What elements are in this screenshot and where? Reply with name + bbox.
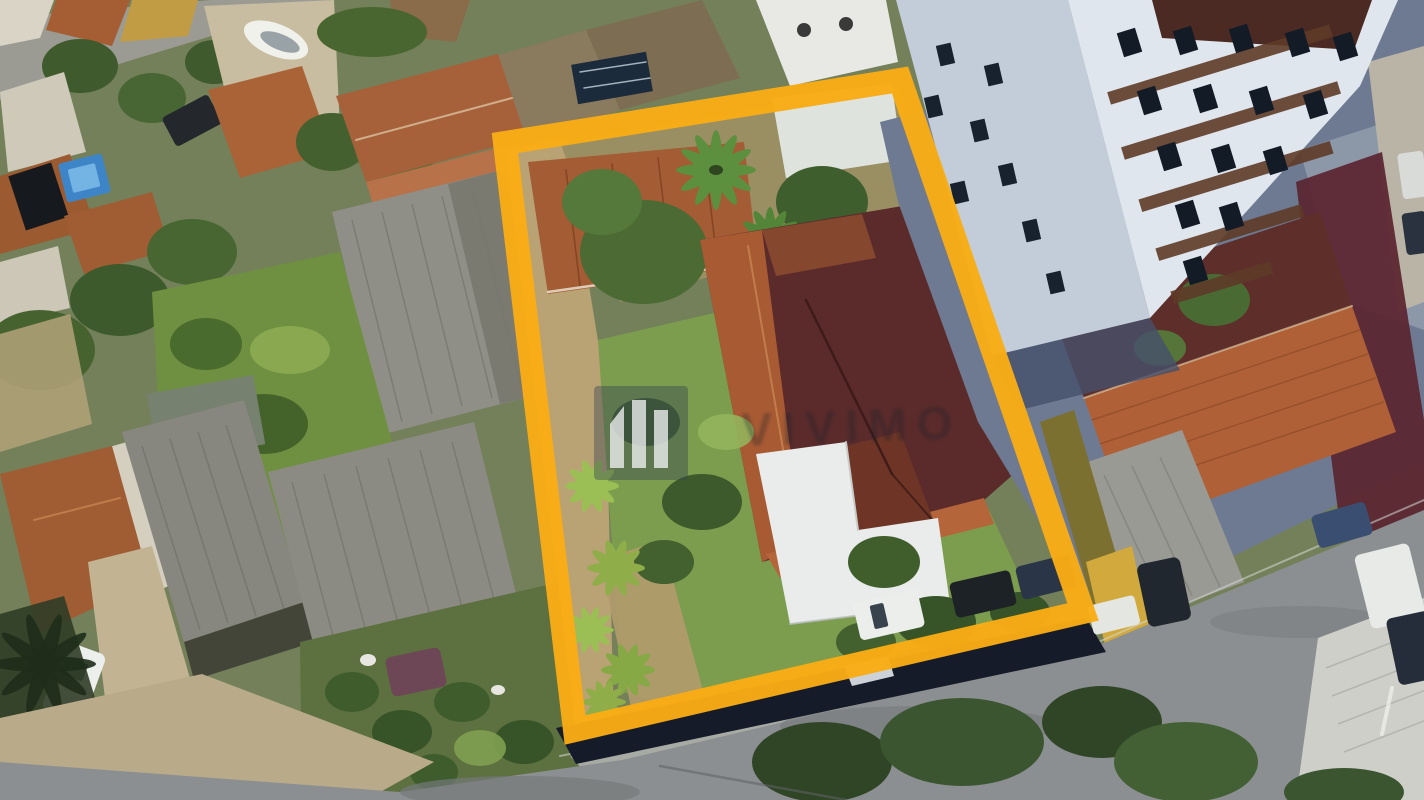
palm-crown-center (709, 165, 723, 175)
roof-top-left-yellow (120, 0, 198, 42)
grass-light (250, 326, 330, 374)
scene: VIVIMO (0, 0, 1424, 800)
tree-canopy (1114, 722, 1258, 800)
bush (325, 672, 379, 712)
watermark-text: VIVIMO (741, 396, 964, 456)
roof-vent (797, 23, 811, 37)
bush-light (454, 730, 506, 766)
yard-object (491, 685, 505, 695)
yard-object (360, 654, 376, 666)
roof-vent (839, 17, 853, 31)
bush (848, 536, 920, 588)
bush (634, 540, 694, 584)
tree-canopy (752, 722, 892, 800)
bush (434, 682, 490, 722)
bush (170, 318, 242, 370)
watermark-logo-bar (654, 410, 668, 468)
bush (662, 474, 742, 530)
tree-canopy (562, 169, 642, 235)
tree-canopy (880, 698, 1044, 786)
tree (317, 7, 427, 57)
tree (147, 219, 237, 285)
aerial-property-photo: VIVIMO (0, 0, 1424, 800)
watermark-logo-bar (632, 400, 646, 468)
